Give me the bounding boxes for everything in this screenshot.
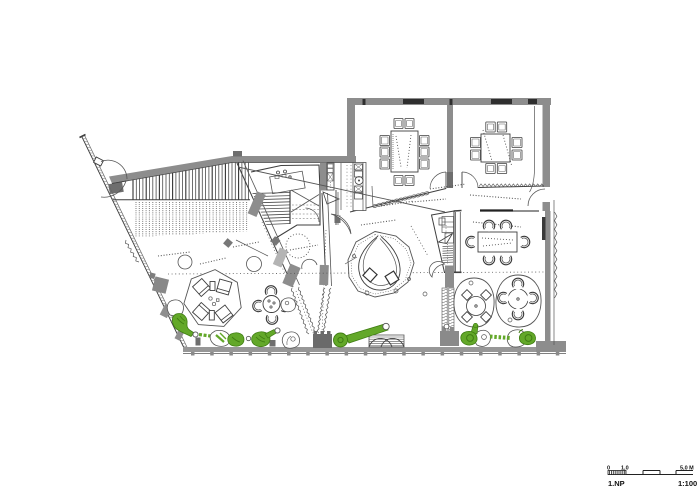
svg-text:5,0 M: 5,0 M [680, 466, 694, 472]
svg-text:1.NP: 1.NP [608, 479, 625, 488]
svg-text:1,0: 1,0 [621, 466, 629, 472]
svg-text:1:100: 1:100 [678, 479, 697, 488]
svg-text:0: 0 [607, 466, 610, 472]
